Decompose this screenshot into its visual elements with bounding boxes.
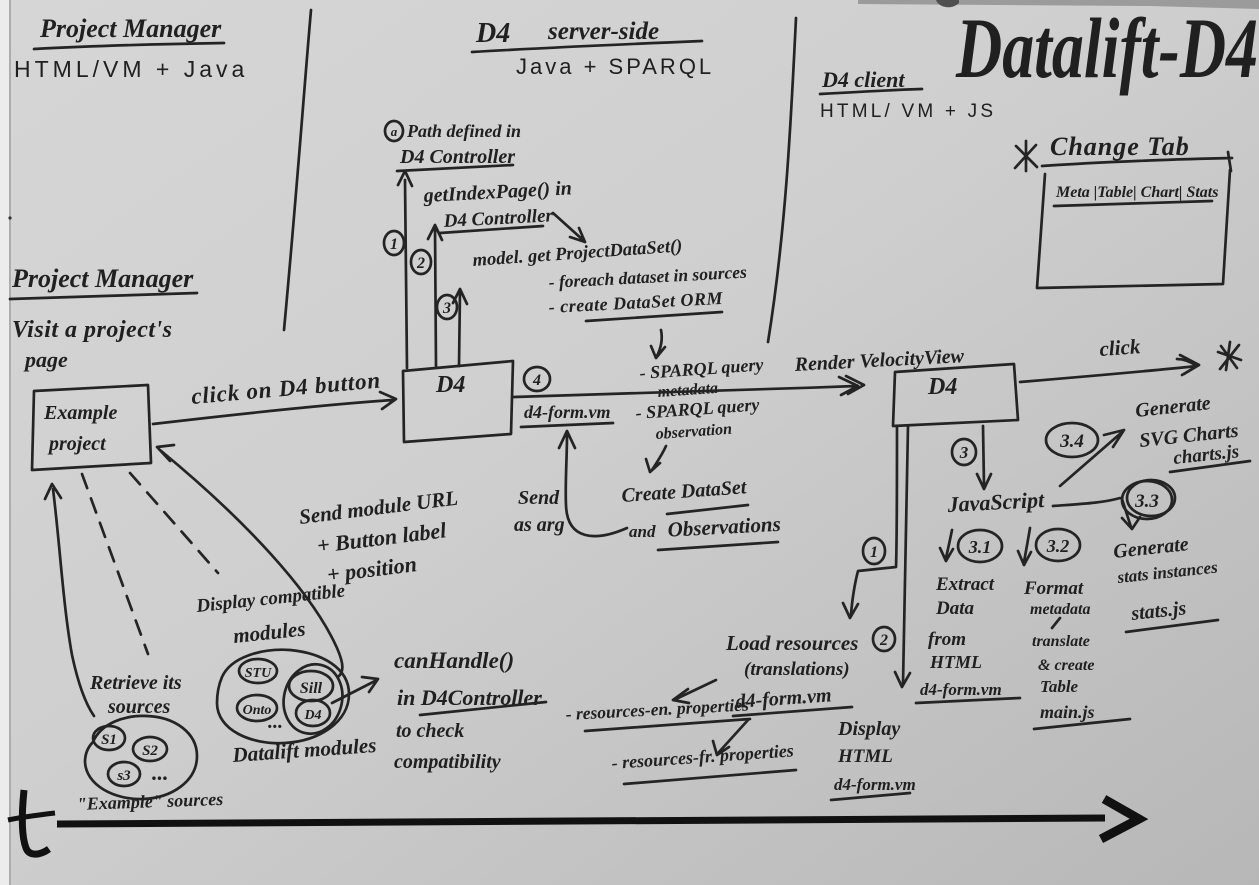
svg-text:server-side: server-side — [547, 18, 659, 45]
svg-text:1: 1 — [870, 544, 878, 561]
svg-text:Project Manager: Project Manager — [39, 14, 222, 43]
svg-text:& create: & create — [1038, 657, 1094, 674]
svg-text:Path defined in: Path defined in — [406, 121, 521, 141]
svg-text:3.3: 3.3 — [1134, 491, 1159, 512]
svg-text:4: 4 — [532, 372, 541, 389]
svg-text:d4-form.vm: d4-form.vm — [920, 680, 1002, 699]
svg-text:main.js: main.js — [1040, 702, 1095, 722]
svg-text:as arg: as arg — [514, 514, 565, 536]
svg-text:S2: S2 — [142, 743, 158, 759]
svg-text:Retrieve its: Retrieve its — [89, 672, 182, 694]
svg-text:Extract: Extract — [935, 574, 995, 595]
svg-text:d4-form.vm: d4-form.vm — [834, 775, 916, 794]
svg-text:to check: to check — [396, 720, 464, 742]
svg-text:HTML: HTML — [929, 652, 982, 672]
svg-text:Example: Example — [43, 402, 117, 424]
svg-text:S1: S1 — [101, 732, 117, 748]
svg-text:D4: D4 — [435, 372, 465, 398]
svg-text:d4-form.vm: d4-form.vm — [524, 402, 610, 422]
svg-text:2: 2 — [416, 255, 425, 272]
svg-text:STU: STU — [245, 666, 272, 681]
svg-text:metadata: metadata — [1030, 601, 1090, 618]
svg-text:HTML: HTML — [837, 746, 893, 767]
svg-text:Datalift-D4: Datalift-D4 — [955, 0, 1258, 96]
svg-text:Data: Data — [935, 598, 975, 619]
svg-text:2: 2 — [879, 632, 888, 649]
svg-text:...: ... — [152, 760, 169, 785]
svg-text:3: 3 — [442, 300, 451, 317]
svg-text:D4: D4 — [927, 374, 957, 400]
svg-text:Java + SPARQL: Java + SPARQL — [516, 54, 714, 79]
svg-text:Meta |Table| Chart| Stats: Meta |Table| Chart| Stats — [1055, 184, 1218, 201]
svg-text:...: ... — [268, 711, 283, 733]
svg-text:project: project — [47, 433, 107, 455]
svg-text:Display: Display — [837, 718, 900, 740]
svg-text:translate: translate — [1032, 633, 1090, 650]
svg-text:3.4: 3.4 — [1059, 431, 1084, 452]
svg-text:click: click — [1099, 334, 1142, 361]
svg-text:(translations): (translations) — [744, 659, 850, 680]
svg-text:and: and — [629, 522, 656, 541]
svg-text:Visit a project's: Visit a project's — [12, 317, 173, 343]
svg-text:1: 1 — [390, 236, 398, 253]
svg-text:D4 client: D4 client — [821, 67, 905, 92]
svg-text:Load resources: Load resources — [725, 631, 858, 655]
svg-text:3: 3 — [959, 443, 969, 462]
svg-text:3.1: 3.1 — [968, 537, 992, 557]
svg-text:from: from — [928, 629, 966, 650]
svg-text:s3: s3 — [116, 768, 131, 784]
svg-text:3.2: 3.2 — [1046, 536, 1070, 556]
svg-text:page: page — [23, 347, 68, 372]
svg-text:Sill: Sill — [300, 680, 323, 697]
svg-text:compatibility: compatibility — [394, 751, 501, 773]
svg-text:HTML/VM + Java: HTML/VM + Java — [14, 56, 248, 82]
svg-text:Change Tab: Change Tab — [1050, 132, 1190, 161]
svg-text:Project Manager: Project Manager — [11, 264, 194, 293]
svg-text:Format: Format — [1023, 578, 1084, 599]
svg-text:D4: D4 — [303, 708, 321, 723]
svg-text:a: a — [391, 124, 398, 139]
svg-text:Send: Send — [518, 487, 560, 509]
svg-text:D4: D4 — [475, 18, 510, 49]
svg-text:HTML/ VM + JS: HTML/ VM + JS — [820, 101, 996, 122]
svg-text:Table: Table — [1040, 677, 1079, 696]
svg-text:in D4Controller: in D4Controller — [397, 685, 542, 710]
svg-text:canHandle(): canHandle() — [394, 648, 514, 673]
svg-text:JavaScript: JavaScript — [946, 487, 1046, 517]
